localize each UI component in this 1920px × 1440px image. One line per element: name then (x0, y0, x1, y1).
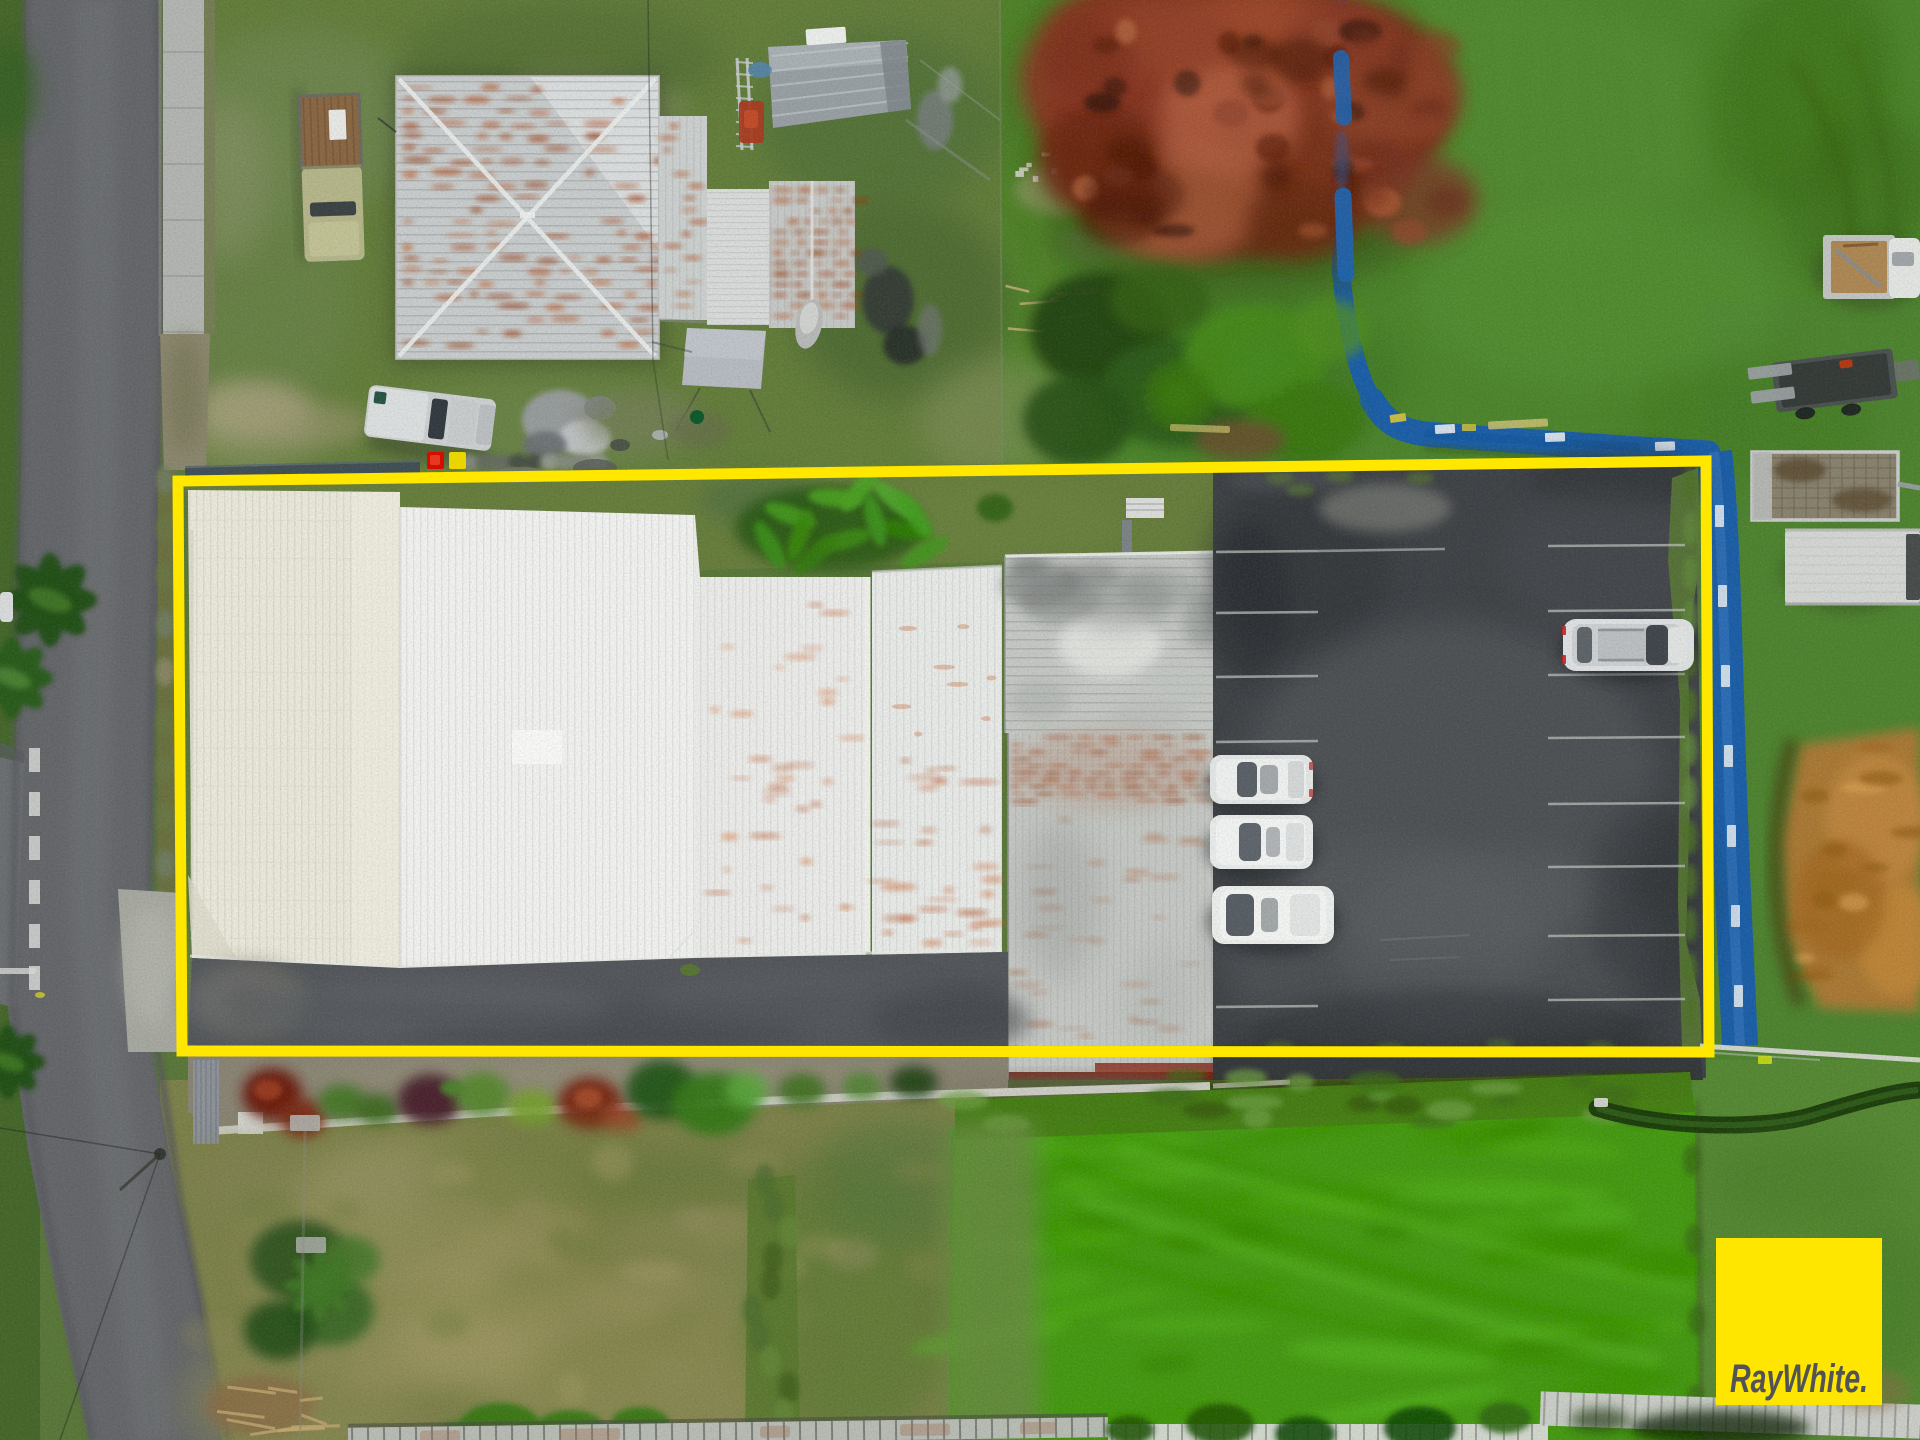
svg-text:RayWhite.: RayWhite. (1730, 1357, 1868, 1401)
